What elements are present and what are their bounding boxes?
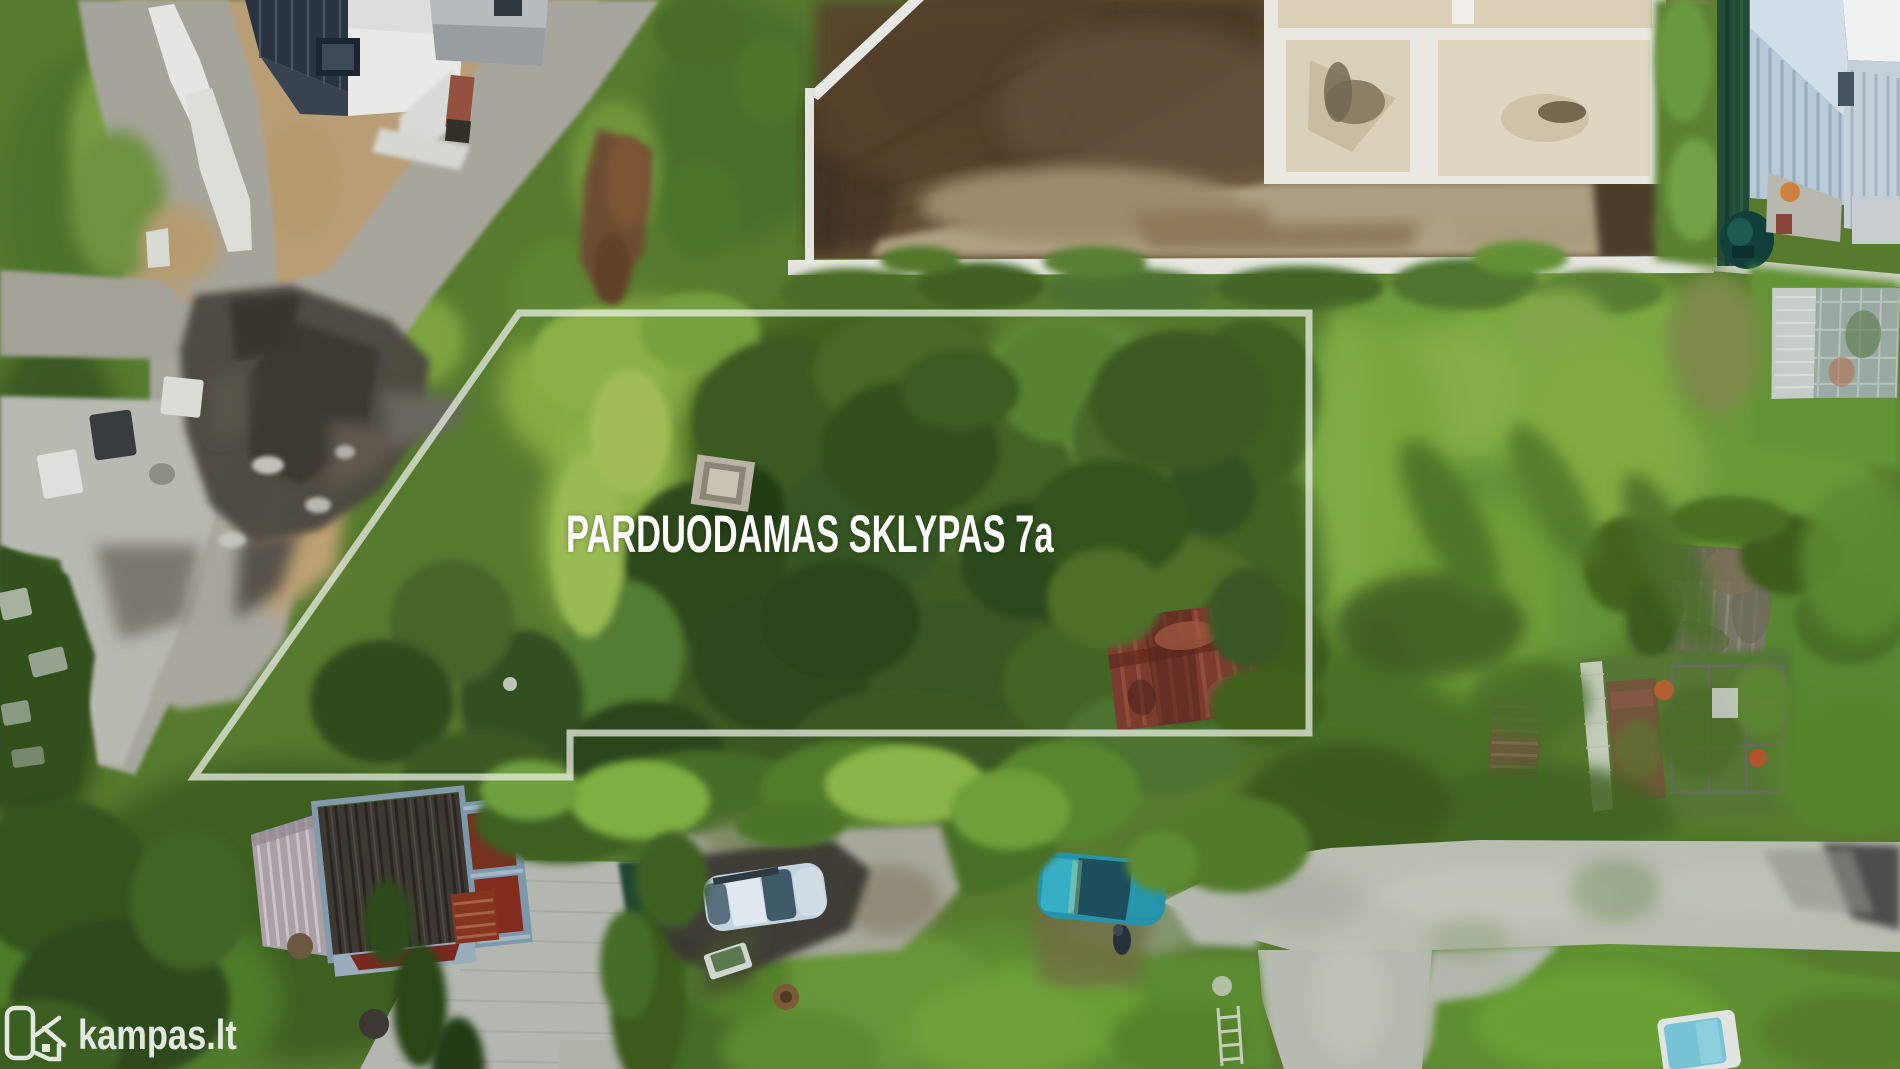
svg-text:kampas.lt: kampas.lt bbox=[78, 1012, 237, 1059]
